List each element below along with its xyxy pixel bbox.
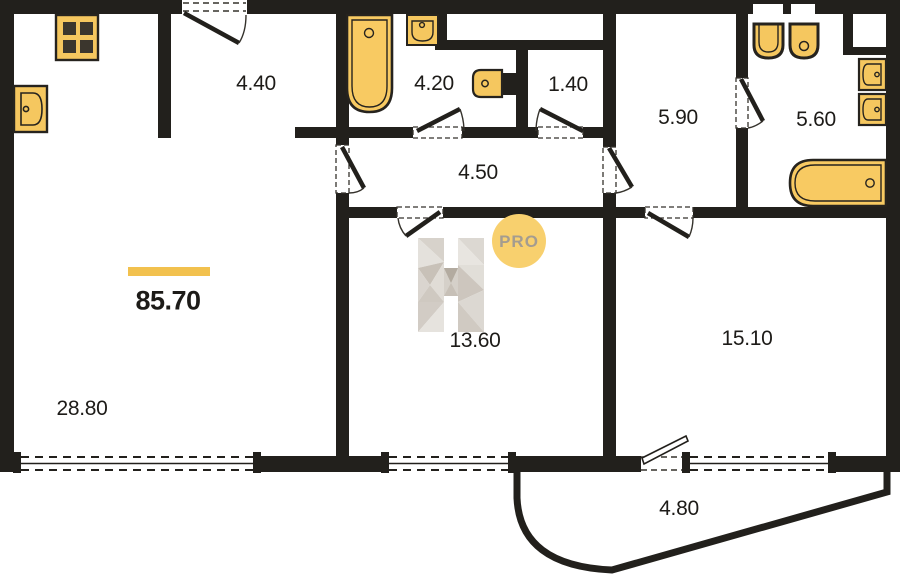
door-swing xyxy=(336,145,364,193)
walls xyxy=(0,0,900,473)
door-swing xyxy=(413,109,464,138)
stove-icon xyxy=(56,15,98,60)
room-area-label-dressing-room: 5.90 xyxy=(658,106,698,130)
wall-sink-icon xyxy=(859,94,886,125)
toilet-icon xyxy=(790,24,818,58)
balcony-parapet xyxy=(517,468,887,570)
room-area-label-entry-hall: 4.40 xyxy=(236,72,276,96)
bathtub-vertical-icon xyxy=(347,15,392,112)
watermark-letter xyxy=(418,238,484,332)
entrance-door xyxy=(182,0,247,43)
total-area-accent-bar xyxy=(128,267,210,276)
room-area-label-balcony: 4.80 xyxy=(659,497,699,521)
room-area-label-bathroom: 4.20 xyxy=(414,72,454,96)
door-swing xyxy=(397,207,443,236)
window xyxy=(389,457,508,470)
door-swing xyxy=(603,147,632,193)
window xyxy=(690,457,828,470)
balcony-door xyxy=(641,436,688,470)
bathtub-horizontal-icon xyxy=(790,160,886,206)
windows xyxy=(21,457,828,470)
door-swing xyxy=(736,78,763,128)
pro-badge: PRO xyxy=(492,214,546,268)
kitchen-sink-icon xyxy=(14,86,47,132)
room-area-label-bedroom: 15.10 xyxy=(721,327,772,351)
pro-badge-text: PRO xyxy=(499,232,539,251)
window xyxy=(21,457,253,470)
doors xyxy=(182,0,763,470)
small-sink-icon xyxy=(407,15,438,45)
door-swing xyxy=(536,109,583,138)
room-area-label-wc: 1.40 xyxy=(548,73,588,97)
toilet-icon xyxy=(473,70,502,97)
watermark-logo: PRO xyxy=(418,214,546,332)
room-area-label-bathroom-2: 5.60 xyxy=(796,108,836,132)
toilet-icon xyxy=(754,24,783,58)
room-area-label-hallway: 4.50 xyxy=(458,161,498,185)
room-area-label-living-kitchen: 28.80 xyxy=(56,397,107,421)
room-area-label-room: 13.60 xyxy=(449,329,500,353)
floor-plan: PRO 4.40 4.20 1.40 4.50 5.90 5.60 13.60 … xyxy=(0,0,900,583)
wall-sink-icon xyxy=(859,59,886,90)
door-swing xyxy=(645,207,693,237)
total-area-label: 85.70 xyxy=(135,286,200,317)
